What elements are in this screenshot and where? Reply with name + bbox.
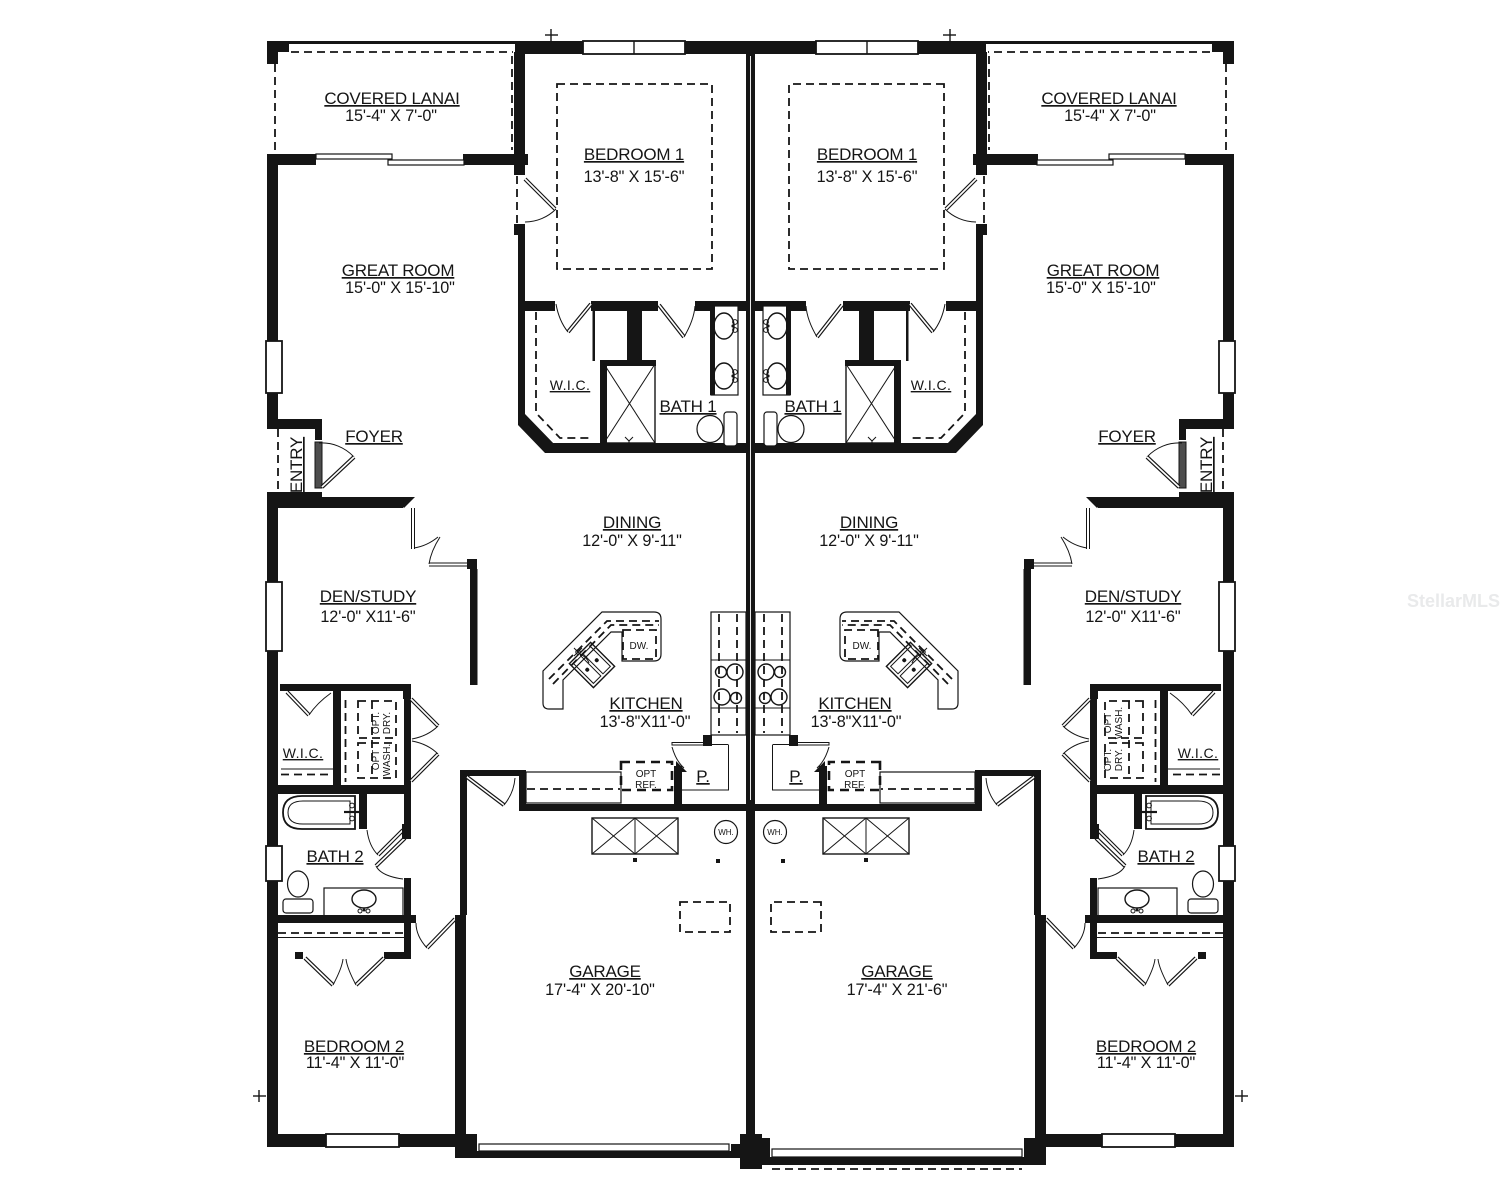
svg-text:11'-4" X 11'-0": 11'-4" X 11'-0"	[306, 1054, 405, 1072]
svg-text:W.I.C.: W.I.C.	[911, 377, 952, 393]
svg-text:DRY.: DRY.	[382, 712, 393, 734]
svg-text:12'-0" X11'-6": 12'-0" X11'-6"	[1085, 608, 1181, 626]
svg-text:13'-8" X 15'-6": 13'-8" X 15'-6"	[817, 168, 918, 186]
svg-text:DINING: DINING	[603, 513, 661, 532]
svg-text:REF.: REF.	[635, 780, 657, 791]
svg-text:BATH 2: BATH 2	[1137, 847, 1194, 866]
svg-text:ENTRY: ENTRY	[287, 437, 306, 493]
svg-text:WASH.: WASH.	[382, 744, 393, 776]
svg-text:BATH 1: BATH 1	[659, 397, 716, 416]
svg-text:13'-8"X11'-0": 13'-8"X11'-0"	[811, 713, 902, 731]
svg-text:15'-4" X 7'-0": 15'-4" X 7'-0"	[1064, 107, 1156, 125]
svg-text:OPT: OPT	[845, 769, 866, 780]
svg-text:17'-4" X 21'-6": 17'-4" X 21'-6"	[847, 981, 948, 999]
svg-text:KITCHEN: KITCHEN	[818, 694, 891, 713]
svg-text:DEN/STUDY: DEN/STUDY	[320, 587, 416, 606]
svg-text:ENTRY: ENTRY	[1197, 437, 1216, 493]
svg-text:11'-4" X 11'-0": 11'-4" X 11'-0"	[1097, 1054, 1196, 1072]
svg-text:OPT: OPT	[636, 769, 657, 780]
svg-text:W.I.C.: W.I.C.	[550, 377, 591, 393]
svg-text:BEDROOM 1: BEDROOM 1	[584, 145, 684, 164]
svg-text:P.: P.	[789, 767, 802, 786]
svg-text:DW.: DW.	[853, 641, 872, 652]
svg-text:OPT.: OPT.	[1103, 749, 1114, 771]
svg-text:DW.: DW.	[630, 641, 649, 652]
svg-text:W.I.C.: W.I.C.	[1178, 745, 1219, 761]
svg-text:FOYER: FOYER	[1098, 427, 1156, 446]
svg-text:GARAGE: GARAGE	[569, 962, 641, 981]
svg-text:OPT: OPT	[371, 750, 382, 771]
svg-text:GREAT ROOM: GREAT ROOM	[1047, 261, 1160, 280]
svg-text:W.I.C.: W.I.C.	[283, 745, 324, 761]
svg-text:15'-4" X 7'-0": 15'-4" X 7'-0"	[345, 107, 437, 125]
svg-text:StellarMLS: StellarMLS	[1407, 591, 1500, 611]
svg-text:COVERED LANAI: COVERED LANAI	[324, 89, 459, 108]
svg-text:KITCHEN: KITCHEN	[609, 694, 682, 713]
svg-text:OPT: OPT	[1103, 713, 1114, 734]
svg-text:GREAT ROOM: GREAT ROOM	[342, 261, 455, 280]
svg-text:GARAGE: GARAGE	[861, 962, 933, 981]
svg-text:15'-0" X 15'-10": 15'-0" X 15'-10"	[1046, 279, 1156, 297]
svg-text:WH.: WH.	[718, 828, 734, 837]
svg-text:WH.: WH.	[767, 828, 783, 837]
svg-text:COVERED LANAI: COVERED LANAI	[1041, 89, 1176, 108]
svg-text:REF.: REF.	[844, 780, 866, 791]
svg-text:BATH 1: BATH 1	[784, 397, 841, 416]
svg-text:12'-0" X 9'-11": 12'-0" X 9'-11"	[819, 532, 919, 550]
svg-text:15'-0" X 15'-10": 15'-0" X 15'-10"	[345, 279, 455, 297]
svg-text:12'-0" X 9'-11": 12'-0" X 9'-11"	[582, 532, 682, 550]
svg-text:BEDROOM 1: BEDROOM 1	[817, 145, 917, 164]
svg-text:OPT.: OPT.	[371, 712, 382, 734]
svg-text:WASH.: WASH.	[1114, 707, 1125, 739]
svg-text:12'-0" X11'-6": 12'-0" X11'-6"	[320, 608, 416, 626]
svg-text:17'-4" X 20'-10": 17'-4" X 20'-10"	[545, 981, 655, 999]
svg-text:13'-8"X11'-0": 13'-8"X11'-0"	[600, 713, 691, 731]
svg-text:13'-8" X 15'-6": 13'-8" X 15'-6"	[584, 168, 685, 186]
svg-text:DRY.: DRY.	[1114, 749, 1125, 771]
svg-text:BATH 2: BATH 2	[306, 847, 363, 866]
svg-text:FOYER: FOYER	[345, 427, 403, 446]
svg-text:P.: P.	[696, 767, 709, 786]
svg-text:DINING: DINING	[840, 513, 898, 532]
svg-text:DEN/STUDY: DEN/STUDY	[1085, 587, 1181, 606]
